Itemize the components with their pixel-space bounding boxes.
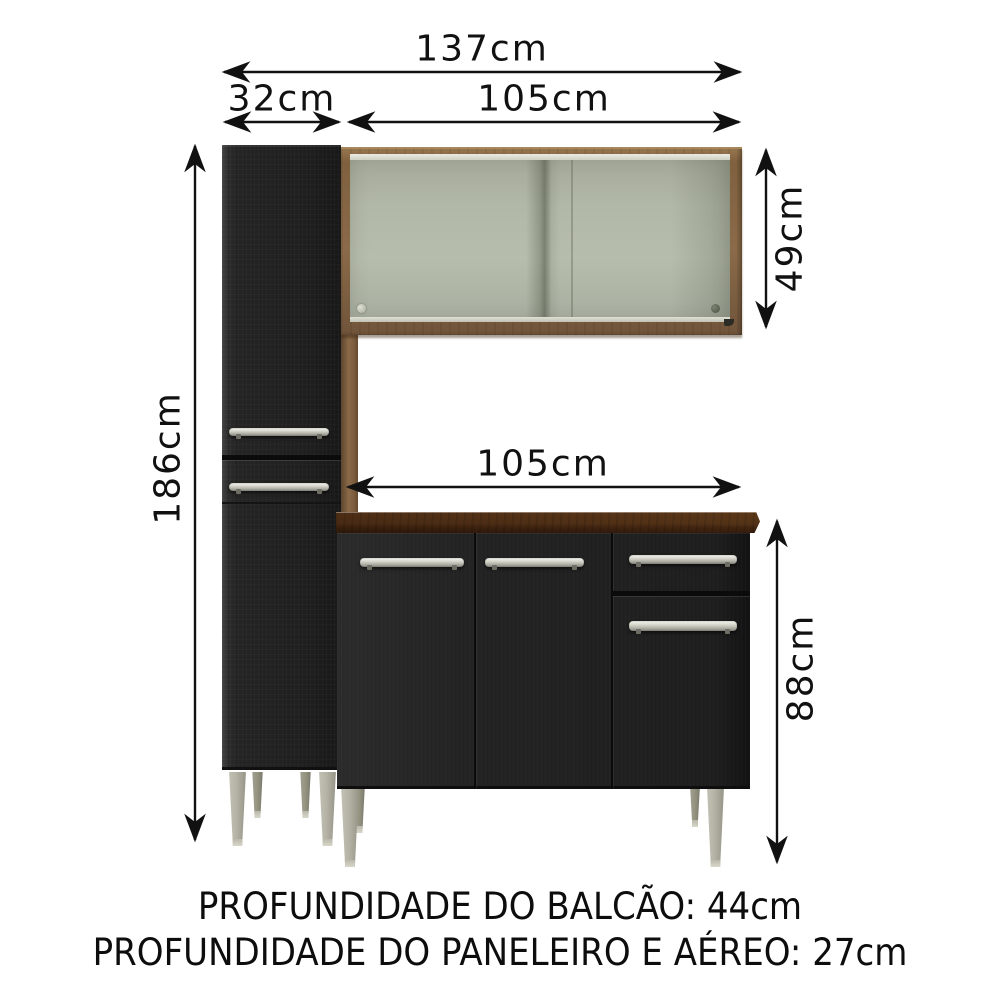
tall-cabinet-lower-handle — [229, 483, 329, 491]
glass-door-left-knob — [357, 304, 366, 313]
product-dimension-diagram: 137cm 32cm 105cm 186cm 49cm 105cm 88cm P… — [0, 0, 1000, 1000]
base-cabinet-balcao — [337, 533, 750, 789]
glass-center-divider-shadow — [526, 160, 560, 317]
label-counter-height: 88cm — [781, 614, 822, 723]
tall-cabinet-front-right-leg — [317, 772, 338, 846]
label-tower-width: 32cm — [228, 79, 337, 120]
base-cabinet-back-right-leg — [689, 789, 701, 827]
tall-cabinet-lower-seam — [222, 502, 341, 504]
base-door-seam-2 — [611, 533, 613, 789]
wall-cabinet-aereo — [341, 147, 742, 335]
tall-cabinet-door-seam — [222, 455, 341, 460]
base-cabinet-front-right-leg — [705, 789, 726, 867]
label-upper-width: 105cm — [477, 79, 611, 120]
label-upper-height: 49cm — [770, 184, 811, 293]
base-door-3-handle — [629, 621, 737, 631]
drawer-seam — [613, 591, 750, 596]
label-total-width: 137cm — [415, 29, 549, 70]
label-counter-width: 105cm — [476, 444, 610, 485]
base-door-1-handle — [360, 558, 464, 567]
depth-note-cabinets: PROFUNDIDADE DO PANELEIRO E AÉREO: 27cm — [40, 930, 960, 976]
depth-note-counter: PROFUNDIDADE DO BALCÃO: 44cm — [40, 884, 960, 930]
depth-notes: PROFUNDIDADE DO BALCÃO: 44cm PROFUNDIDAD… — [0, 884, 1000, 976]
sliding-door-edge — [571, 160, 573, 317]
glass-door-right-knob — [711, 304, 720, 313]
tall-cabinet-upper-handle — [229, 428, 329, 436]
tall-cabinet-front-left-leg — [227, 772, 248, 846]
base-door-2-handle — [485, 558, 584, 567]
tall-cabinet-back-left-leg — [251, 772, 264, 818]
label-tower-height: 186cm — [148, 391, 189, 525]
tall-cabinet-paneleiro — [222, 145, 341, 770]
glass-right-shading — [670, 160, 730, 317]
tall-cabinet-back-right-leg — [299, 772, 312, 818]
drawer-handle — [629, 555, 737, 564]
glass-bottom-rail — [350, 317, 730, 322]
sliding-glass-doors — [350, 154, 730, 322]
countertop — [336, 512, 760, 533]
wall-cabinet-corner-bracket — [724, 319, 734, 326]
tower-side-wood-panel — [341, 334, 358, 515]
base-door-seam-1 — [474, 533, 476, 789]
